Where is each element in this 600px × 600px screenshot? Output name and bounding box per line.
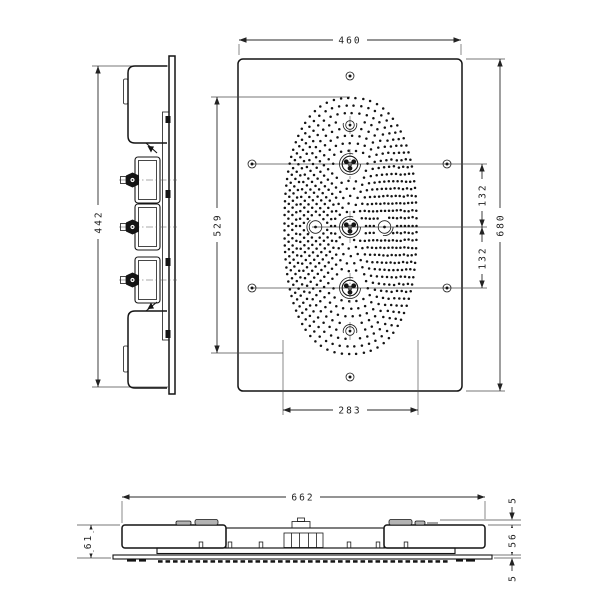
jet-top [343,116,357,134]
dim-label-spray-height: 529 [212,213,223,236]
dim-label-spacing-upper: 132 [477,183,488,206]
dim-label-spacing-lower: 132 [477,246,488,269]
dim-132-lower: 132 [477,227,489,288]
dim-label-panel-thickness: 5 [507,574,518,582]
dim-label-side-height: 442 [93,210,104,233]
jet-side-right [376,218,393,235]
dim-680: 680 [495,59,507,391]
bottom-faceplate [113,555,492,559]
front-view: 460 680 529 [211,35,506,417]
dim-132-upper: 132 [477,164,489,227]
dim-label-front-width: 460 [338,35,361,46]
drawing-canvas: 442 [0,0,600,600]
jet-side-left [307,218,324,235]
dim-460: 460 [239,35,461,47]
dim-label-spray-width: 283 [338,405,361,416]
jet-upper [340,149,361,179]
jet-lower [340,273,361,303]
side-view: 442 [92,56,177,394]
dim-283: 283 [283,405,418,417]
dim-442: 442 [93,66,105,387]
spray-nozzle-field [283,97,418,356]
dim-529: 529 [212,97,224,353]
jet-bottom [343,322,357,340]
dim-label-total-depth: 61 [83,534,94,549]
side-mounting-frame [163,112,170,340]
dim-label-front-height: 680 [495,213,506,236]
dim-662: 662 [122,492,485,504]
dim-chain-right: 5 56 5 [507,493,519,585]
dim-61: 61 [82,525,94,558]
side-top-housing [124,66,168,153]
dim-label-housing-depth: 56 [507,532,518,547]
side-faceplate [169,56,175,394]
bottom-view: 662 [77,492,521,586]
dim-label-clip-height: 5 [507,496,518,504]
nozzle-row [158,560,448,563]
side-bottom-housing [124,302,168,388]
technical-drawing: 442 [0,0,600,600]
dim-label-bottom-width: 662 [291,492,314,503]
bottom-housing [113,518,492,563]
